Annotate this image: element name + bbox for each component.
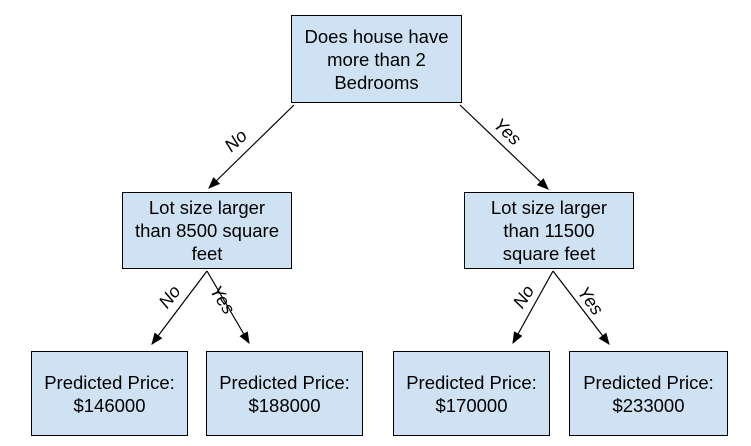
leaf-predicted-price-170000: Predicted Price: $170000 xyxy=(393,351,550,436)
leaf-predicted-price-146000: Predicted Price: $146000 xyxy=(31,351,188,436)
leaf-predicted-price-233000: Predicted Price: $233000 xyxy=(569,351,728,436)
node-root-question: Does house have more than 2 Bedrooms xyxy=(291,15,462,103)
edge-label-root-no: No xyxy=(220,125,251,156)
edge-label-left-no: No xyxy=(155,281,186,312)
edge-label-left-yes: Yes xyxy=(205,282,239,319)
node-lot-size-8500: Lot size larger than 8500 square feet xyxy=(122,192,292,269)
edge-line-left-to-leaf-no xyxy=(152,271,207,344)
leaf-predicted-price-188000: Predicted Price: $188000 xyxy=(206,351,363,436)
decision-tree-diagram: Does house have more than 2 Bedrooms Lot… xyxy=(0,0,751,446)
edge-label-root-yes: Yes xyxy=(489,114,525,150)
edge-line-root-to-left xyxy=(209,105,294,188)
edge-label-right-no: No xyxy=(509,282,539,313)
edge-label-right-yes: Yes xyxy=(573,283,608,320)
node-lot-size-11500: Lot size larger than 11500 square feet xyxy=(464,192,634,269)
